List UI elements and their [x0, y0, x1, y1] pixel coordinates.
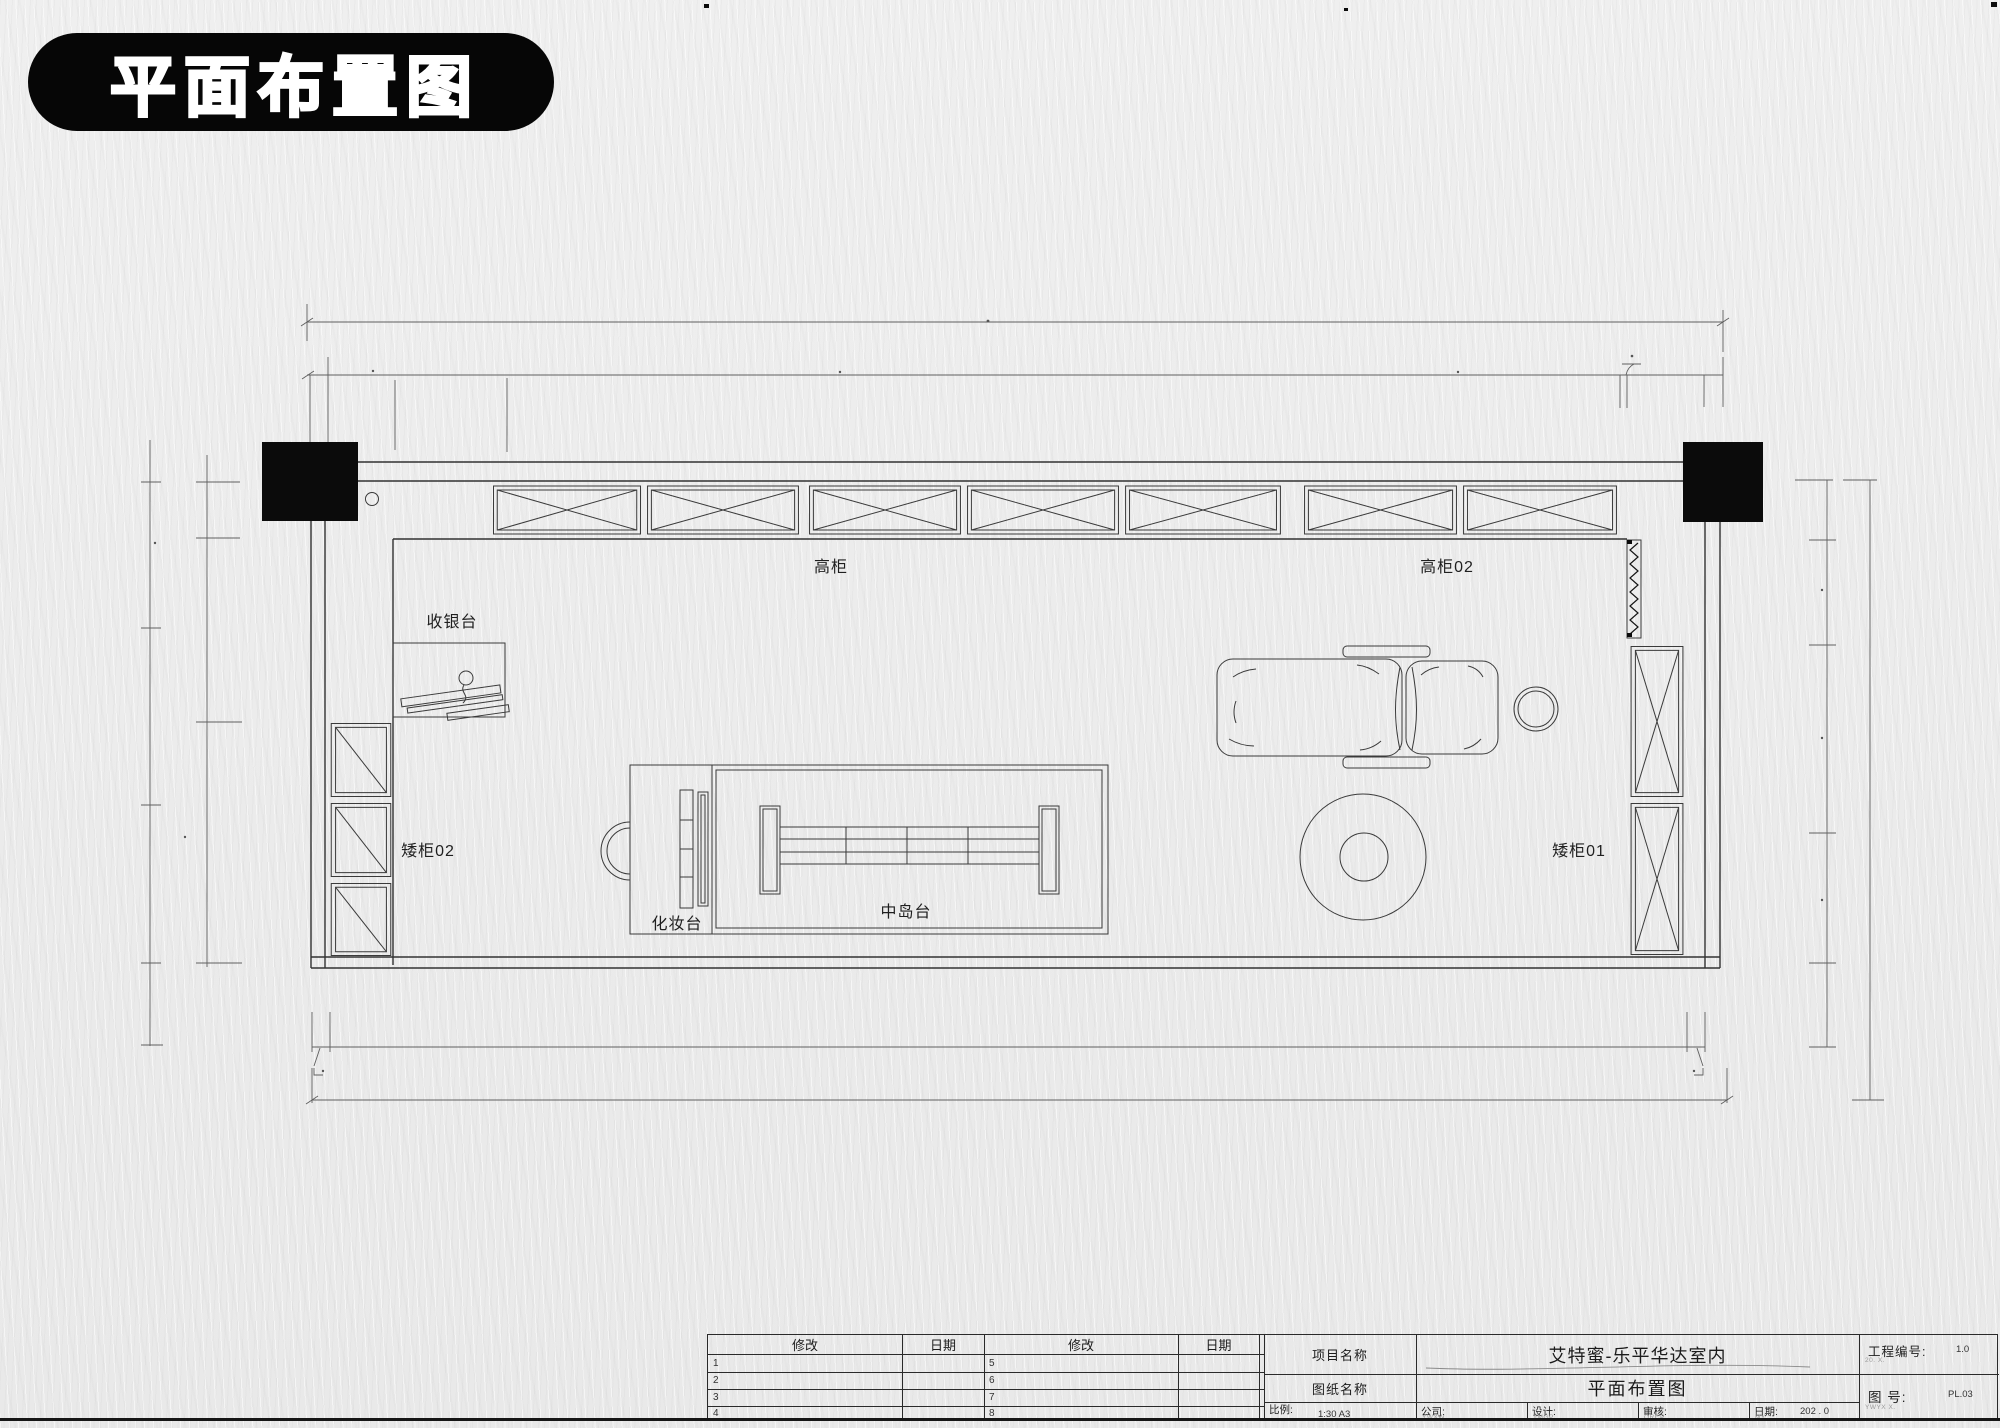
paper-specks [704, 2, 1997, 11]
rev-header-modify-2: 修改 [984, 1335, 1178, 1354]
label-dressing-table: 化妆台 [651, 910, 702, 934]
scale-label: 比例: [1269, 1402, 1293, 1417]
titleblock-grid-line [708, 1372, 1264, 1373]
sheet-name-value: 平面布置图 [1416, 1374, 1859, 1402]
date-value: 202 . 0 [1800, 1406, 1829, 1417]
titleblock-grid-line [708, 1389, 1264, 1390]
titleblock-grid-line [1859, 1335, 1860, 1419]
titleblock-grid-line [708, 1406, 1264, 1407]
structural-column-left [262, 442, 358, 521]
rev-row-number: 5 [989, 1354, 995, 1372]
project-no-value: 1.0 [1956, 1344, 1969, 1355]
rev-row-number: 3 [713, 1389, 719, 1406]
structural-column-right [1683, 442, 1763, 522]
sheet-bottom-border [0, 1418, 2000, 1421]
dimension-lines [141, 304, 1884, 1104]
drawing-no-sub-text: YWYX X. [1865, 1404, 1896, 1411]
label-low-cabinet-02: 矮柜02 [401, 837, 455, 861]
scan-crease-line [1418, 1361, 1818, 1375]
label-tall-cabinet: 高柜 [814, 553, 848, 577]
project-no-sub-text: 20. X. [1865, 1357, 1885, 1364]
rev-row-number: 1 [713, 1354, 719, 1372]
sheet-name-label: 图纸名称 [1264, 1374, 1416, 1402]
wall-detail-circle [366, 493, 379, 506]
walls [311, 462, 1720, 968]
label-low-cabinet-01: 矮柜01 [1552, 837, 1606, 861]
floor-plan-svg [0, 0, 2000, 1428]
label-center-island: 中岛台 [880, 898, 931, 922]
massage-chair [1217, 646, 1558, 768]
tall-cabinet-row [494, 486, 1617, 534]
rev-header-date-2: 日期 [1178, 1335, 1259, 1354]
low-cabinet-right [1631, 647, 1683, 955]
center-island [601, 765, 1108, 934]
title-block: 修改 日期 修改 日期 1 2 3 4 5 6 7 8 项目名称 艾特蜜-乐平华… [707, 1334, 1998, 1420]
project-name-label: 项目名称 [1264, 1335, 1416, 1374]
hatch-strip [1627, 540, 1641, 638]
titleblock-grid-line [1638, 1402, 1639, 1419]
rev-header-modify-1: 修改 [708, 1335, 902, 1354]
rev-header-date-1: 日期 [902, 1335, 984, 1354]
drawing-no-label: 图 号: [1868, 1386, 1907, 1406]
round-stool [1300, 794, 1426, 920]
rev-row-number: 7 [989, 1389, 995, 1406]
drawing-no-value: PL.03 [1948, 1389, 1973, 1400]
label-tall-cabinet-02: 高柜02 [1420, 553, 1474, 577]
titleblock-grid-line [1527, 1402, 1528, 1419]
drawing-sheet: 平面布置图 [0, 0, 2000, 1428]
rev-row-number: 2 [713, 1372, 719, 1389]
titleblock-grid-line [708, 1354, 1264, 1355]
rev-row-number: 6 [989, 1372, 995, 1389]
label-cashier-counter: 收银台 [426, 608, 477, 632]
cashier-desk [393, 643, 509, 720]
low-cabinet-left [331, 724, 391, 956]
titleblock-grid-line [1264, 1402, 1859, 1403]
titleblock-grid-line [1749, 1402, 1750, 1419]
